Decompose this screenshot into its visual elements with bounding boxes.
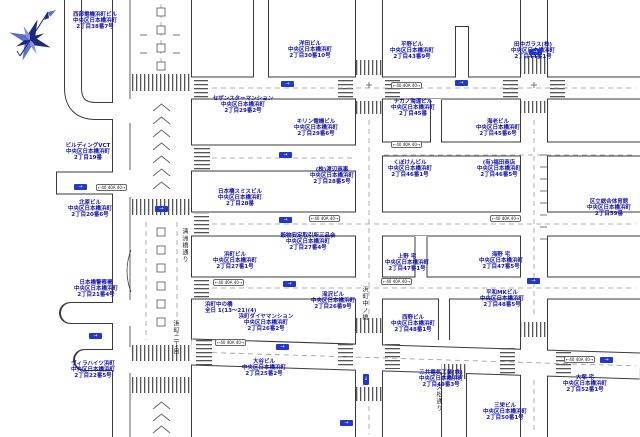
building-label: 日本橋スミスビル中央区日本橋浜町2丁目28番 [218,189,262,207]
building-label: くぼけんビル中央区日本橋浜町2丁目46番1号 [388,160,432,178]
building-label: 日本橋警察署中央区日本橋浜町2丁目21番4号 [74,280,118,298]
compass-icon [2,10,58,68]
building-label: (有)福田商店中央区日本橋浜町2丁目46番5号 [477,160,521,178]
building-label: 大塚 宅中央区日本橋浜町2丁目52番1号 [563,375,607,393]
road-marker: ←40 40A 40→ [564,356,595,363]
oneway-sign: → [281,81,294,87]
building-label: ヴィラハイツ浜町中央区日本橋浜町2丁目22番5号 [71,361,115,379]
building-label: 三共電気工業(株)中央区日本橋浜町2丁目49番3号 [419,370,463,388]
building-label: セザンスターマンション中央区日本橋浜町2丁目29番2号 [213,96,273,114]
building-label: ナカノ海運ビル中央区日本橋浜町2丁目45番 [391,99,435,117]
road-marker: ←40 40A 40→ [490,215,521,222]
building-label: キリン電機ビル中央区日本橋浜町2丁目29番6号 [294,119,338,137]
building-label: 平和MKビル中央区日本橋浜町2丁目48番5号 [480,290,524,308]
oneway-sign: → [455,80,468,86]
oneway-sign: ↓ [363,374,369,385]
oneway-sign: → [340,420,353,426]
building-label: 洋田ビル中央区日本橋浜町2丁目30番10号 [288,41,332,59]
oneway-sign: → [276,344,289,350]
building-label: (株)渡辺商事中央区日本橋浜町2丁目28番5号 [310,167,354,185]
oneway-sign: → [155,206,168,212]
road-marker: ←40 40A 40→ [215,339,246,346]
building-label: 北原ビル中央区日本橋浜町2丁目20番6号 [68,200,112,218]
street-name-hamacho-2chome: 浜町二丁目 [171,320,180,355]
building-label: 浜町ビル中央区日本橋浜町2丁目27番1号 [213,252,257,270]
building-label: 滝沢ビル中央区日本橋浜町2丁目26番9号 [311,292,355,310]
street-name-kiyosubashi: 清洲橋通り [180,228,189,263]
oneway-sign: → [600,357,613,363]
oneway-sign: → [279,217,292,223]
oneway-sign: → [74,184,87,190]
bridge-note: 浜町中の橋全日 1(13〜21)(4) [205,302,256,314]
building-label: 浜町ダイヤマンション中央区日本橋浜町2丁目26番2号 [239,314,294,332]
building-label: 海老ビル中央区日本橋浜町2丁目45番6号 [476,119,520,137]
building-label: 大谷ビル中央区日本橋浜町2丁目25番2号 [242,359,286,377]
road-marker: ←40 40A 40→ [213,279,244,286]
road-marker: ←40 40A 40→ [391,141,422,148]
street-name-nakanohashi: 浜町中ノ橋 [360,286,369,321]
road-marker: ←40 40A 40→ [96,184,127,191]
road-marker: ←40 40A 40→ [309,215,340,222]
road-marker: ←40 40A 40→ [391,82,422,89]
building-label: 穀物安定取引所三品会中央区日本橋浜町2丁目27番4号 [280,233,335,251]
oneway-sign: → [283,281,296,287]
building-label: ビルディングVCT中央区日本橋浜町2丁目19番 [66,143,111,161]
building-label: 上野 宅中央区日本橋浜町2丁目47番1号 [385,254,429,272]
building-label: 海野 宅中央区日本橋浜町2丁目47番5号 [479,252,523,270]
building-label: 平野ビル中央区日本橋浜町2丁目43番9号 [390,42,434,60]
street-name-hisamatsu: 久松通り [434,384,443,412]
building-label: 区立総合体育館中央区日本橋浜町2丁目59番 [587,199,631,217]
building-label: 西野ビル中央区日本橋浜町2丁目48番1号 [391,315,435,333]
oneway-sign: → [527,278,540,284]
building-label: 西部電機浜町ビル中央区日本橋浜町2丁目38番7号 [73,12,117,30]
oneway-sign: → [89,333,102,339]
map-canvas[interactable]: 清洲橋通り 浜町二丁目 浜町中ノ橋 久松通り 西部電機浜町ビル中央区日本橋浜町2… [0,0,640,437]
building-label: 三栄ビル中央区日本橋浜町2丁目50番1号 [483,403,527,421]
road-marker: ←40 40A 40→ [381,278,412,285]
oneway-sign: → [279,152,292,158]
oneway-sign: → [529,49,542,55]
